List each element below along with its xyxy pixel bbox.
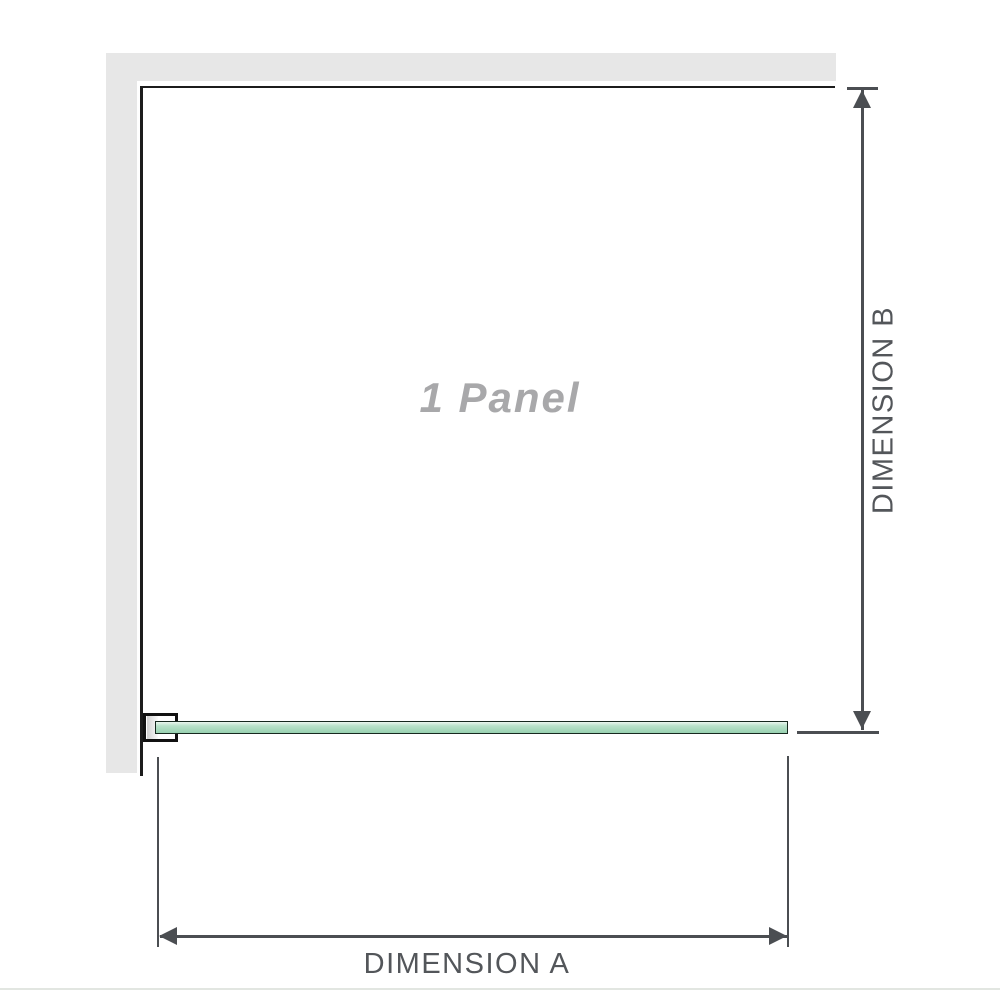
wall-left-strip (106, 53, 137, 773)
dimension-b-tick-bottom (797, 731, 879, 734)
dimension-a-label: DIMENSION A (364, 948, 571, 981)
arrow-right-icon (769, 927, 787, 945)
wall-top-strip (106, 53, 836, 81)
arrow-down-icon (853, 711, 871, 729)
arrow-left-icon (159, 927, 177, 945)
panel-label: 1 Panel (419, 374, 580, 422)
panel-left-border (140, 86, 143, 776)
dimension-a-extension-right (787, 756, 790, 947)
glass-panel-bar (155, 721, 788, 734)
dimension-a-extension-left (157, 757, 160, 947)
dimension-b-line (861, 89, 864, 730)
dimension-b-label: DIMENSION B (868, 306, 901, 514)
arrow-up-icon (853, 90, 871, 108)
page-bottom-rule (0, 988, 1000, 990)
panel-top-border (140, 86, 835, 89)
dimension-a-line (160, 935, 787, 938)
panel-dimension-diagram: 1 Panel DIMENSION B DIMENSION A (0, 0, 1000, 1000)
